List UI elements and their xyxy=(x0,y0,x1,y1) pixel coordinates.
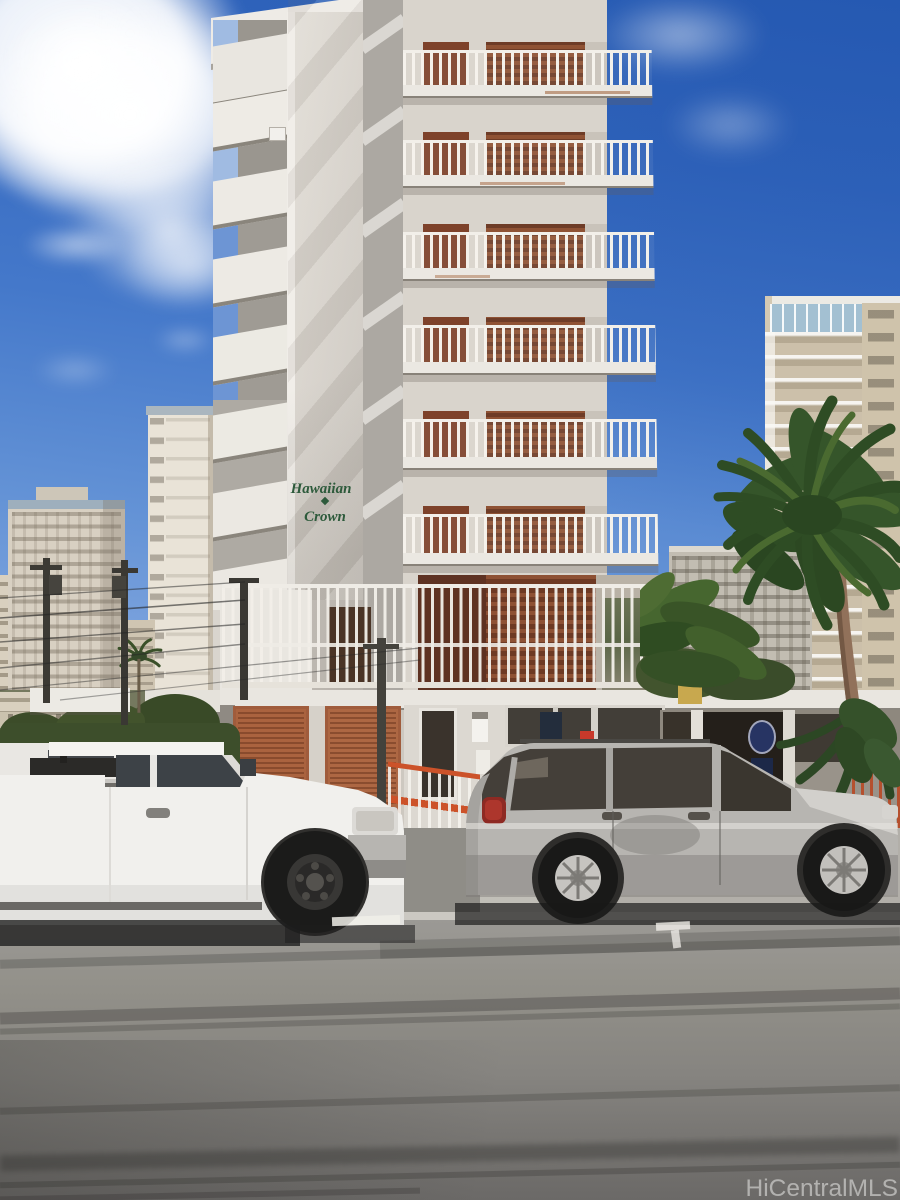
svg-text:Crown: Crown xyxy=(304,509,346,525)
svg-text:Hawaiian: Hawaiian xyxy=(290,481,352,497)
